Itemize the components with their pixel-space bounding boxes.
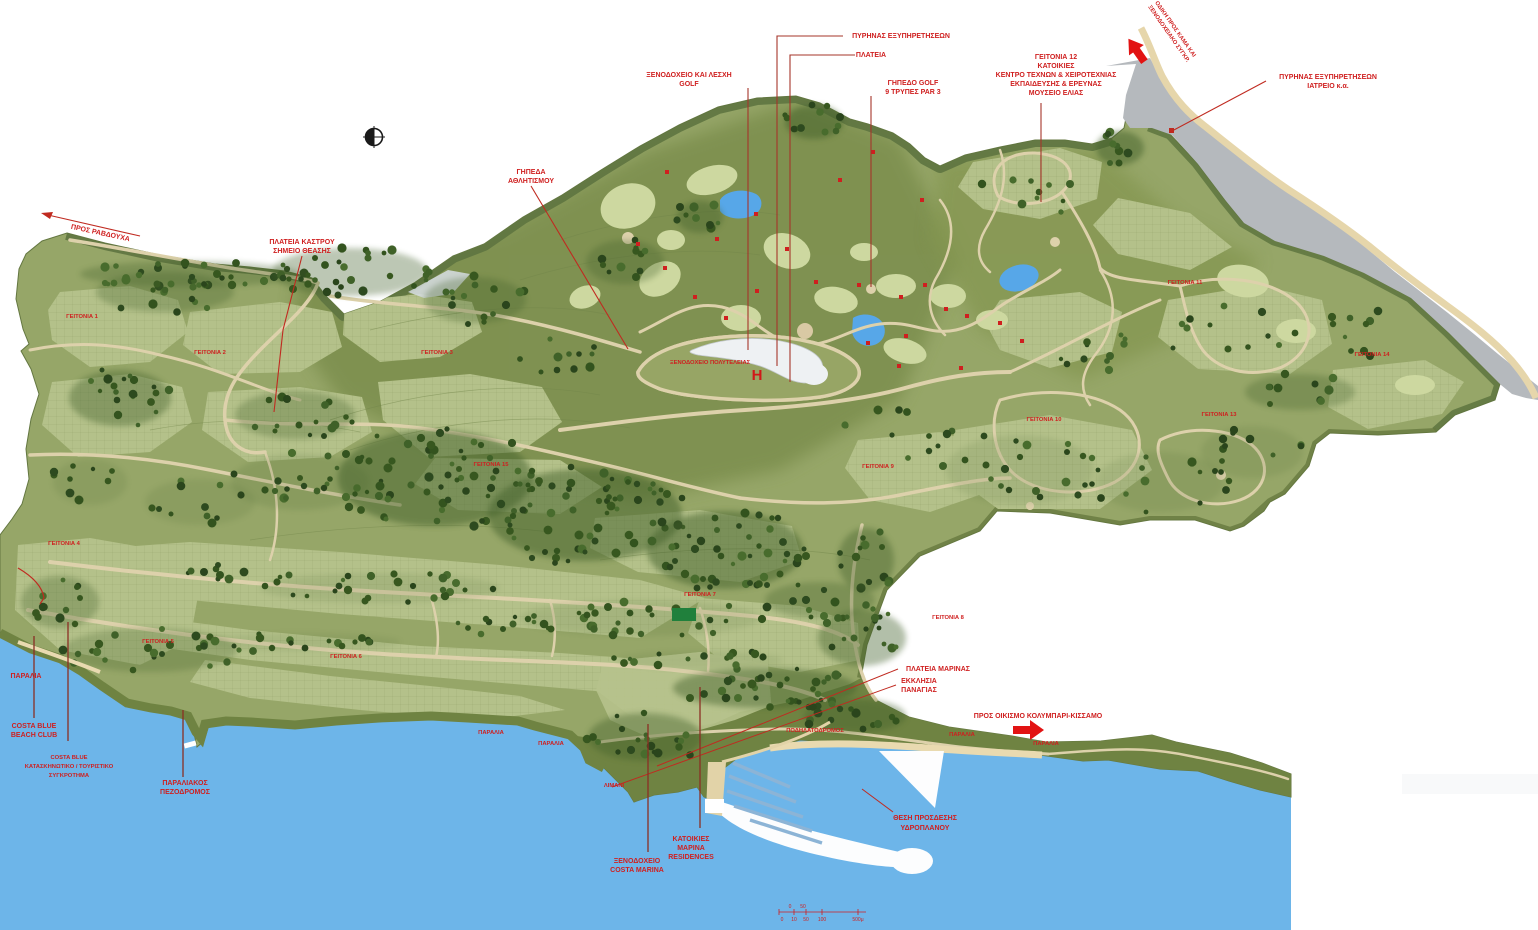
svg-text:ΞΕΝΟΔΟΧΕΙΟ: ΞΕΝΟΔΟΧΕΙΟ [614, 858, 661, 865]
svg-text:ΠΛΑΤΕΙΑ ΚΑΣΤΡΟΥ: ΠΛΑΤΕΙΑ ΚΑΣΤΡΟΥ [269, 239, 335, 246]
svg-text:ΓΕΙΤΟΝΙΑ 2: ΓΕΙΤΟΝΙΑ 2 [194, 350, 226, 356]
svg-text:ΣΗΜΕΙΟ ΘΕΑΣΗΣ: ΣΗΜΕΙΟ ΘΕΑΣΗΣ [273, 248, 331, 255]
svg-text:COSTA BLUE: COSTA BLUE [12, 723, 57, 730]
svg-text:ΠΥΡΗΝΑΣ ΕΞΥΠΗΡΕΤΗΣΕΩΝ: ΠΥΡΗΝΑΣ ΕΞΥΠΗΡΕΤΗΣΕΩΝ [852, 33, 950, 40]
svg-text:ΜΑΡΙΝΑ: ΜΑΡΙΝΑ [677, 845, 705, 852]
svg-text:ΓΗΠΕΔΑ: ΓΗΠΕΔΑ [516, 169, 545, 176]
svg-text:ΠΑΡΑΛΙΑ: ΠΑΡΑΛΙΑ [538, 741, 564, 747]
svg-text:H: H [752, 367, 763, 384]
svg-text:ΠΑΡΑΛΙΑ: ΠΑΡΑΛΙΑ [1033, 741, 1059, 747]
svg-text:ΠΥΡΗΝΑΣ ΕΞΥΠΗΡΕΤΗΣΕΩΝ: ΠΥΡΗΝΑΣ ΕΞΥΠΗΡΕΤΗΣΕΩΝ [1279, 74, 1377, 81]
svg-text:50: 50 [800, 904, 806, 910]
svg-text:ΠΑΡΑΛΙΑ: ΠΑΡΑΛΙΑ [478, 730, 504, 736]
svg-text:ΠΛΑΤΕΙΑ ΜΑΡΙΝΑΣ: ΠΛΑΤΕΙΑ ΜΑΡΙΝΑΣ [906, 666, 970, 673]
svg-text:ΓΕΙΤΟΝΙΑ 13: ΓΕΙΤΟΝΙΑ 13 [1202, 412, 1238, 418]
svg-text:ΜΟΥΣΕΙΟ ΕΛΙΑΣ: ΜΟΥΣΕΙΟ ΕΛΙΑΣ [1029, 90, 1084, 97]
svg-text:ΙΑΤΡΕΙΟ κ.α.: ΙΑΤΡΕΙΟ κ.α. [1307, 83, 1349, 90]
svg-text:100: 100 [818, 917, 827, 923]
svg-text:500μ: 500μ [852, 917, 863, 923]
svg-text:ΓΕΙΤΟΝΙΑ 6: ΓΕΙΤΟΝΙΑ 6 [330, 654, 363, 660]
svg-text:ΓΕΙΤΟΝΙΑ 1: ΓΕΙΤΟΝΙΑ 1 [66, 314, 99, 320]
svg-text:10: 10 [791, 917, 797, 923]
svg-text:RESIDENCES: RESIDENCES [668, 854, 714, 861]
svg-text:ΚΑΤΟΙΚΙΕΣ: ΚΑΤΟΙΚΙΕΣ [1038, 63, 1075, 70]
svg-text:ΣΥΓΚΡΟΤΗΜΑ: ΣΥΓΚΡΟΤΗΜΑ [49, 773, 90, 779]
svg-text:ΓΕΙΤΟΝΙΑ 12: ΓΕΙΤΟΝΙΑ 12 [1035, 54, 1077, 61]
svg-text:ΓΕΙΤΟΝΙΑ 11: ΓΕΙΤΟΝΙΑ 11 [1168, 280, 1203, 286]
svg-text:ΕΚΠΑΙΔΕΥΣΗΣ & ΕΡΕΥΝΑΣ: ΕΚΠΑΙΔΕΥΣΗΣ & ΕΡΕΥΝΑΣ [1010, 81, 1102, 88]
svg-text:ΓΕΙΤΟΝΙΑ 9: ΓΕΙΤΟΝΙΑ 9 [862, 464, 895, 470]
svg-text:ΥΔΡΟΠΛΑΝΟΥ: ΥΔΡΟΠΛΑΝΟΥ [901, 825, 950, 832]
svg-text:ΓΗΠΕΔΟ GOLF: ΓΗΠΕΔΟ GOLF [888, 80, 939, 87]
svg-text:ΠΟΔΗΛΑΤΟΔΡΟΜΟΣ: ΠΟΔΗΛΑΤΟΔΡΟΜΟΣ [786, 728, 844, 734]
svg-text:BEACH CLUB: BEACH CLUB [11, 732, 57, 739]
svg-text:ΓΕΙΤΟΝΙΑ 10: ΓΕΙΤΟΝΙΑ 10 [1027, 417, 1062, 423]
svg-text:ΕΚΚΛΗΣΙΑ: ΕΚΚΛΗΣΙΑ [901, 678, 937, 685]
svg-text:ΠΕΖΟΔΡΟΜΟΣ: ΠΕΖΟΔΡΟΜΟΣ [160, 789, 210, 796]
svg-text:50: 50 [803, 917, 809, 923]
svg-text:ΠΑΡΑΛΙΑ: ΠΑΡΑΛΙΑ [11, 673, 42, 680]
svg-text:0: 0 [789, 904, 792, 910]
svg-text:ΚΑΤΟΙΚΙΕΣ: ΚΑΤΟΙΚΙΕΣ [673, 836, 710, 843]
svg-text:0: 0 [781, 917, 784, 923]
svg-text:9 ΤΡΥΠΕΣ PAR 3: 9 ΤΡΥΠΕΣ PAR 3 [885, 89, 941, 96]
svg-text:ΓΕΙΤΟΝΙΑ 14: ΓΕΙΤΟΝΙΑ 14 [1355, 352, 1391, 358]
svg-text:ΓΕΙΤΟΝΙΑ 15: ΓΕΙΤΟΝΙΑ 15 [474, 462, 510, 468]
svg-text:ΓΕΙΤΟΝΙΑ 4: ΓΕΙΤΟΝΙΑ 4 [48, 541, 81, 547]
svg-text:ΞΕΝΟΔΟΧΕΙΟ ΚΑΙ ΛΕΣΧΗ: ΞΕΝΟΔΟΧΕΙΟ ΚΑΙ ΛΕΣΧΗ [646, 72, 731, 79]
svg-text:ΑΘΛΗΤΙΣΜΟΥ: ΑΘΛΗΤΙΣΜΟΥ [508, 178, 554, 185]
svg-text:ΓΕΙΤΟΝΙΑ 3: ΓΕΙΤΟΝΙΑ 3 [421, 350, 454, 356]
svg-text:ΛΙΜΑΝΙ: ΛΙΜΑΝΙ [604, 783, 625, 789]
svg-text:ΓΕΙΤΟΝΙΑ 7: ΓΕΙΤΟΝΙΑ 7 [684, 592, 716, 598]
svg-text:ΞΕΝΟΔΟΧΕΙΟ ΠΟΛΥΤΕΛΕΙΑΣ: ΞΕΝΟΔΟΧΕΙΟ ΠΟΛΥΤΕΛΕΙΑΣ [670, 360, 751, 366]
svg-text:ΠΑΡΑΛΙΑΚΟΣ: ΠΑΡΑΛΙΑΚΟΣ [162, 780, 207, 787]
svg-text:GOLF: GOLF [679, 81, 699, 88]
svg-text:ΚΑΤΑΣΚΗΝΩΤΙΚΟ / ΤΟΥΡΙΣΤΙΚΟ: ΚΑΤΑΣΚΗΝΩΤΙΚΟ / ΤΟΥΡΙΣΤΙΚΟ [25, 764, 114, 770]
svg-text:ΚΕΝΤΡΟ ΤΕΧΝΩΝ & ΧΕΙΡΟΤΕΧΝΙΑΣ: ΚΕΝΤΡΟ ΤΕΧΝΩΝ & ΧΕΙΡΟΤΕΧΝΙΑΣ [996, 72, 1117, 79]
svg-text:ΠΛΑΤΕΙΑ: ΠΛΑΤΕΙΑ [856, 52, 886, 59]
svg-text:COSTA BLUE: COSTA BLUE [50, 755, 87, 761]
svg-text:ΓΕΙΤΟΝΙΑ 5: ΓΕΙΤΟΝΙΑ 5 [142, 639, 175, 645]
svg-text:ΘΕΣΗ ΠΡΟΣΔΕΣΗΣ: ΘΕΣΗ ΠΡΟΣΔΕΣΗΣ [893, 815, 957, 822]
svg-text:ΠΑΡΑΛΙΑ: ΠΑΡΑΛΙΑ [949, 732, 975, 738]
svg-text:ΠΡΟΣ ΟΙΚΙΣΜΟ ΚΟΛΥΜΠΑΡΙ-ΚΙΣΣΑΜΟ: ΠΡΟΣ ΟΙΚΙΣΜΟ ΚΟΛΥΜΠΑΡΙ-ΚΙΣΣΑΜΟ [974, 713, 1103, 720]
svg-text:COSTA MARINA: COSTA MARINA [610, 867, 664, 874]
svg-text:ΓΕΙΤΟΝΙΑ 8: ΓΕΙΤΟΝΙΑ 8 [932, 615, 965, 621]
svg-text:ΠΑΝΑΓΙΑΣ: ΠΑΝΑΓΙΑΣ [901, 687, 937, 694]
